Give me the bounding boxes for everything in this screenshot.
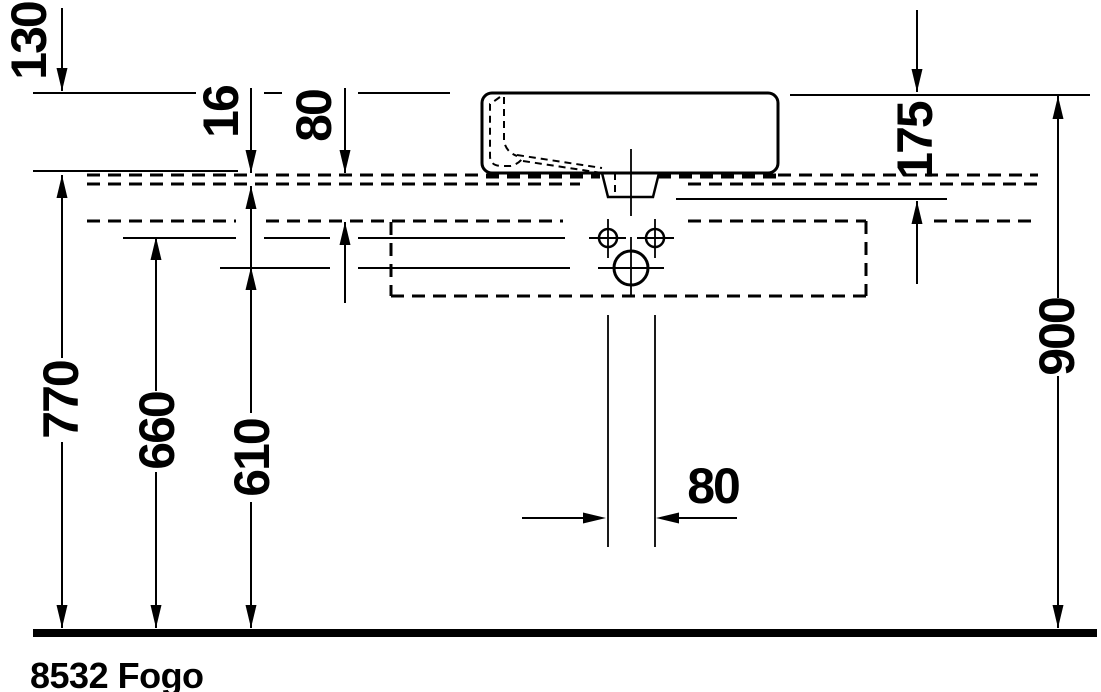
dimension-900-label: 900 bbox=[1032, 298, 1082, 375]
dimension-130-line bbox=[57, 8, 68, 91]
technical-drawing-canvas: 130 16 80 175 770 660 610 900 80 8532 Fo… bbox=[0, 0, 1101, 692]
dimension-175-label: 175 bbox=[890, 102, 940, 179]
dimension-16-label: 16 bbox=[196, 86, 246, 138]
vanity-unit-dashed-outline bbox=[87, 221, 1038, 296]
dimension-610-label: 610 bbox=[227, 419, 277, 496]
dimension-80-bottom-label: 80 bbox=[687, 461, 739, 511]
hole-extension-lines bbox=[608, 315, 655, 547]
dimension-660-label: 660 bbox=[132, 392, 182, 469]
dimension-610-line bbox=[246, 186, 257, 628]
dimension-80-top-label: 80 bbox=[289, 90, 339, 142]
dimension-130-label: 130 bbox=[4, 2, 54, 79]
floor-line bbox=[33, 629, 1097, 637]
dimension-80-bottom-line bbox=[522, 513, 737, 524]
product-code-label: 8532 Fogo bbox=[30, 658, 204, 692]
dimension-770-label: 770 bbox=[36, 361, 86, 438]
